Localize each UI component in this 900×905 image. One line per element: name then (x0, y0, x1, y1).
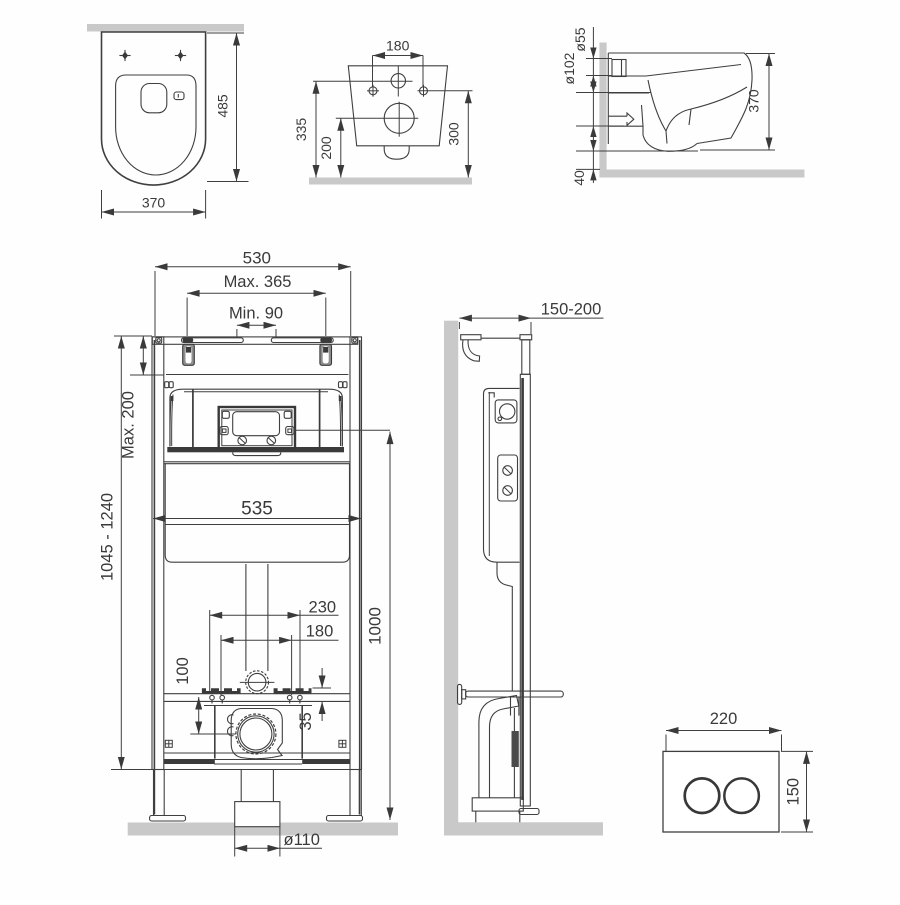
svg-text:35: 35 (297, 712, 315, 730)
svg-text:370: 370 (746, 89, 762, 113)
svg-text:220: 220 (710, 710, 738, 728)
svg-text:1045 - 1240: 1045 - 1240 (99, 493, 117, 581)
svg-text:150-200: 150-200 (541, 301, 602, 319)
svg-text:1000: 1000 (366, 607, 385, 645)
svg-text:485: 485 (215, 94, 231, 118)
svg-text:300: 300 (446, 122, 462, 146)
svg-text:Max. 200: Max. 200 (120, 391, 138, 459)
svg-text:ø55: ø55 (572, 27, 588, 51)
svg-text:40: 40 (571, 170, 587, 186)
svg-text:Min. 90: Min. 90 (229, 305, 283, 323)
svg-text:180: 180 (386, 38, 410, 54)
svg-text:100: 100 (174, 657, 192, 685)
svg-text:370: 370 (142, 195, 166, 211)
svg-text:ø110: ø110 (284, 831, 320, 849)
svg-text:530: 530 (243, 249, 271, 268)
svg-text:535: 535 (241, 499, 273, 520)
svg-text:200: 200 (318, 136, 334, 160)
svg-text:230: 230 (309, 598, 337, 616)
svg-text:335: 335 (293, 118, 309, 142)
svg-text:180: 180 (306, 623, 334, 641)
svg-text:Max. 365: Max. 365 (224, 273, 292, 291)
svg-text:150: 150 (785, 778, 803, 806)
svg-text:ø102: ø102 (561, 52, 577, 84)
